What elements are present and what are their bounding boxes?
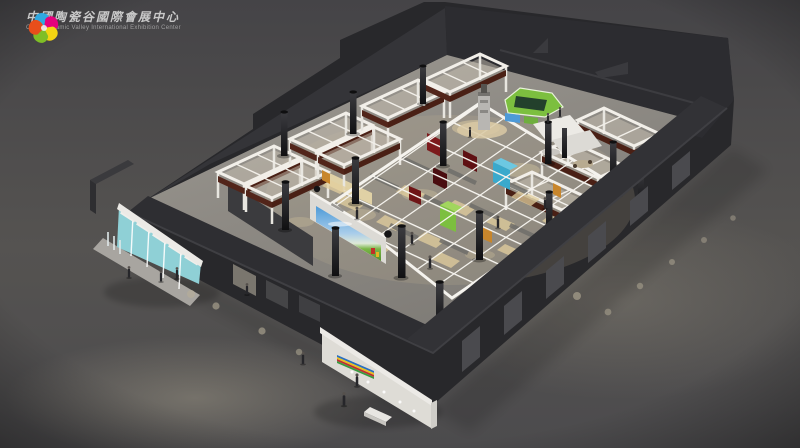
vignette-overlay [0,0,800,448]
exhibition-render: 中國陶瓷谷國際會展中心 China Ceramic Valley Interna… [0,0,800,448]
logo-swirl-icon [26,10,62,46]
render-scene [0,0,800,448]
logo: 中國陶瓷谷國際會展中心 China Ceramic Valley Interna… [26,10,181,33]
